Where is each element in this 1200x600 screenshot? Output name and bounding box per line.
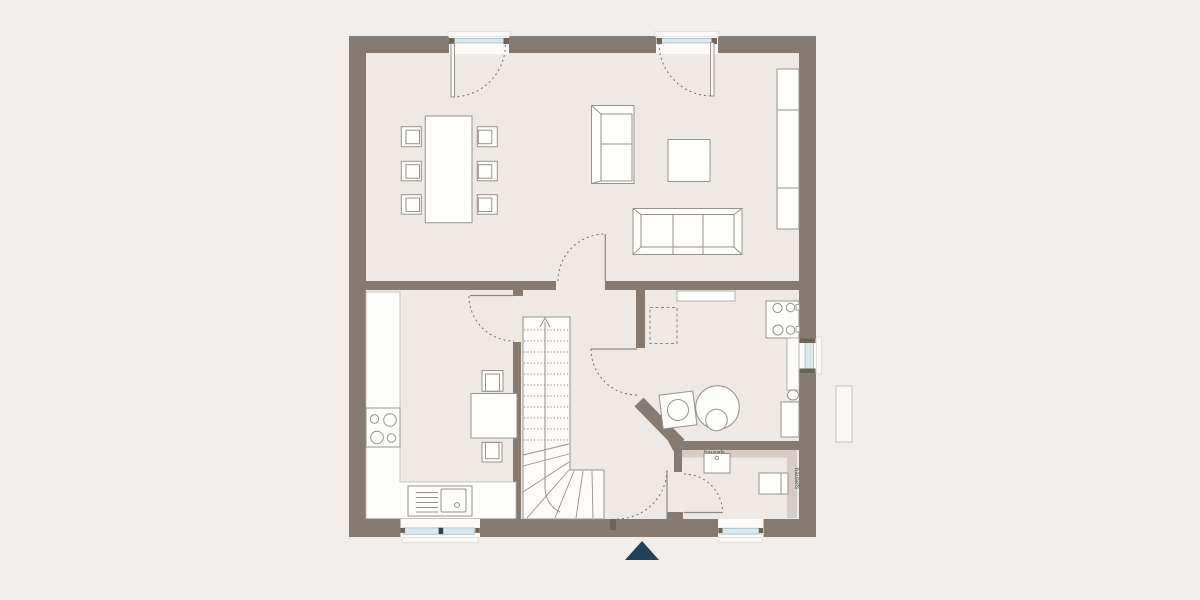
- svg-text:bausefs: bausefs: [793, 468, 799, 489]
